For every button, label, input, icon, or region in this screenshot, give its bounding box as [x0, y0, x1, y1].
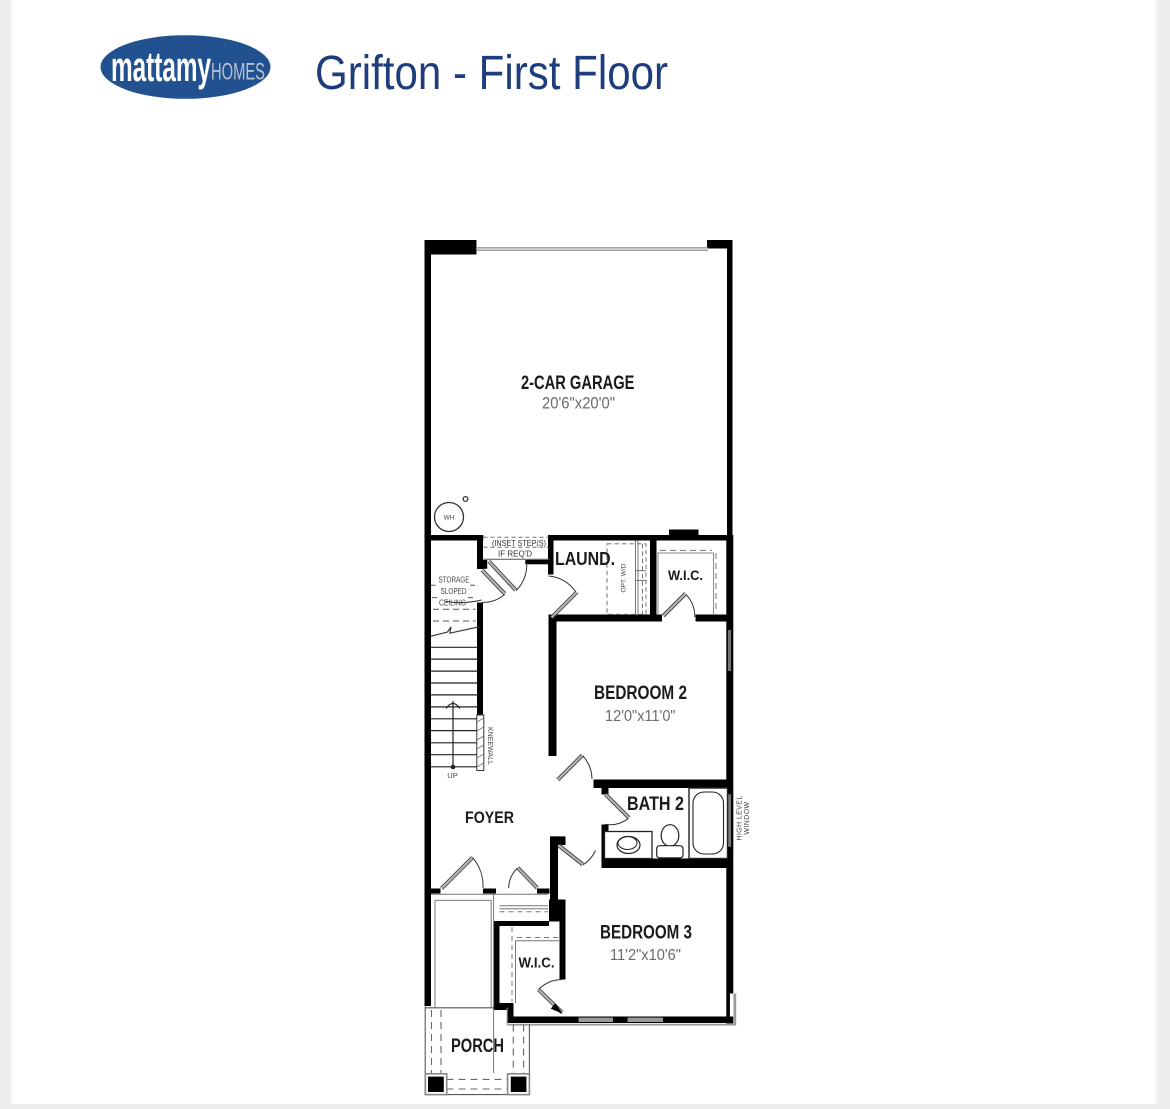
svg-text:IF REQ'D: IF REQ'D — [498, 550, 532, 559]
svg-text:WINDOW: WINDOW — [744, 801, 751, 834]
svg-text:W.I.C.: W.I.C. — [519, 955, 555, 972]
svg-text:(INSET STEP(S): (INSET STEP(S) — [492, 539, 546, 548]
svg-text:Grifton - First Floor: Grifton - First Floor — [315, 47, 668, 100]
svg-text:20'6"x20'0": 20'6"x20'0" — [542, 395, 615, 413]
svg-text:12'0"x11'0": 12'0"x11'0" — [605, 708, 676, 725]
svg-text:BEDROOM 3: BEDROOM 3 — [600, 923, 692, 944]
svg-text:BATH 2: BATH 2 — [627, 793, 684, 815]
svg-text:FOYER: FOYER — [465, 808, 514, 827]
svg-text:2-CAR GARAGE: 2-CAR GARAGE — [521, 372, 635, 394]
svg-text:mattamy: mattamy — [111, 43, 211, 90]
svg-text:LAUND.: LAUND. — [555, 548, 615, 569]
svg-text:CEILING: CEILING — [439, 598, 466, 607]
svg-text:HOMES: HOMES — [211, 59, 265, 86]
svg-text:KNEEWALL: KNEEWALL — [486, 727, 493, 765]
svg-text:SLOPED: SLOPED — [441, 587, 467, 596]
svg-text:W.I.C.: W.I.C. — [668, 567, 703, 583]
svg-text:UP: UP — [447, 771, 457, 780]
svg-text:STORAGE: STORAGE — [439, 576, 470, 585]
svg-text:PORCH: PORCH — [451, 1036, 504, 1057]
svg-text:WH: WH — [444, 515, 455, 522]
svg-text:11'2"x10'6": 11'2"x10'6" — [610, 947, 681, 964]
svg-text:HIGH LEVEL: HIGH LEVEL — [737, 795, 744, 840]
svg-text:BEDROOM 2: BEDROOM 2 — [594, 683, 687, 704]
svg-text:OPT. W/D: OPT. W/D — [621, 563, 628, 592]
